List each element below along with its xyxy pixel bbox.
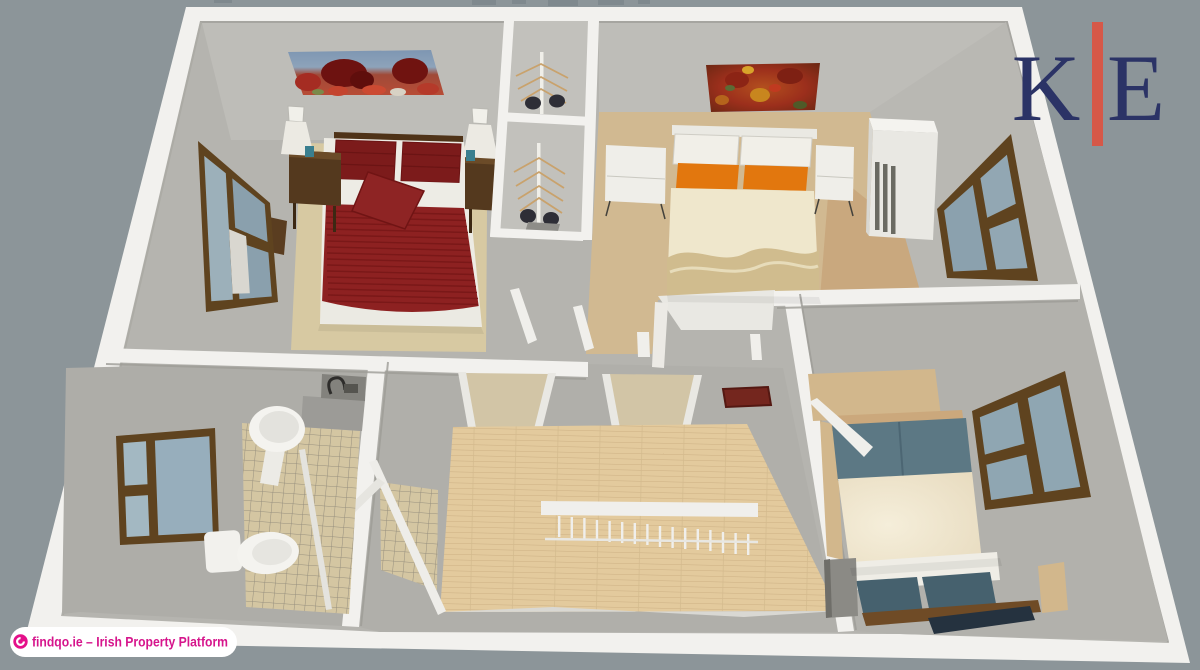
svg-text:E: E xyxy=(1107,35,1165,141)
svg-text:K: K xyxy=(1012,35,1081,141)
svg-text:findqo.ie – Irish Property Pla: findqo.ie – Irish Property Platform xyxy=(32,635,228,650)
